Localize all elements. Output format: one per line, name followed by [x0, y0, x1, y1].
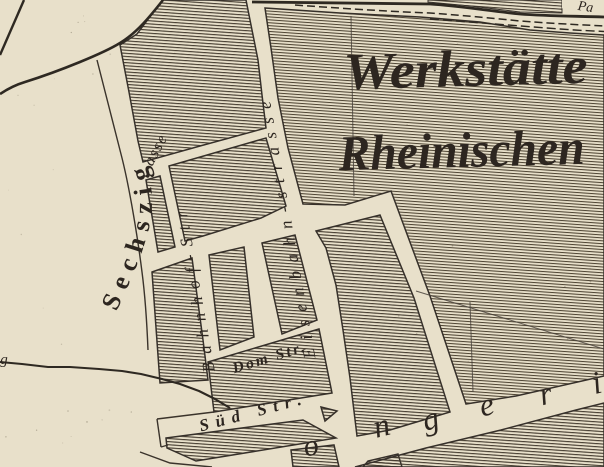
- svg-text:Pa: Pa: [576, 0, 594, 16]
- svg-text:g: g: [0, 352, 8, 368]
- svg-text:Werkstätte: Werkstätte: [343, 38, 588, 101]
- svg-text:Rheinischen: Rheinischen: [337, 119, 585, 181]
